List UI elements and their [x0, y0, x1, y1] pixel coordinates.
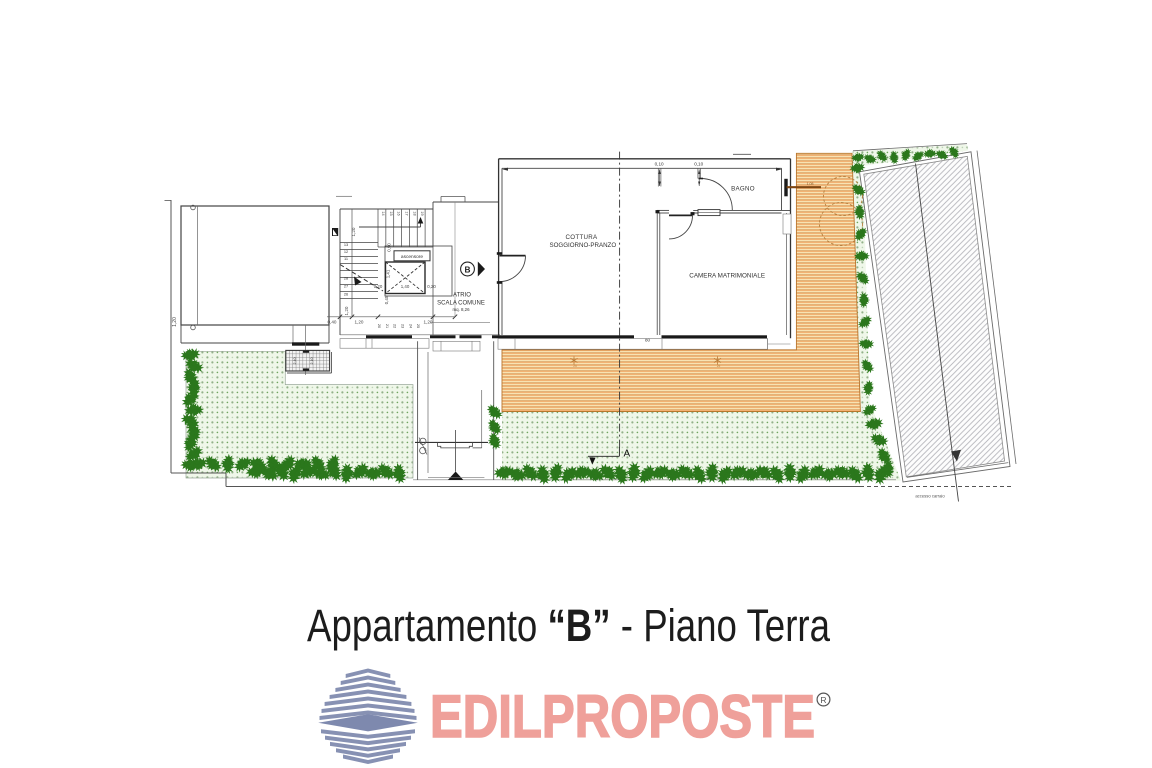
- svg-text:23: 23: [400, 324, 404, 328]
- svg-text:Appartamento “B” - Piano Terra: Appartamento “B” - Piano Terra: [307, 600, 831, 651]
- svg-text:28: 28: [344, 276, 348, 281]
- svg-text:1,20: 1,20: [172, 317, 178, 327]
- svg-text:16: 16: [397, 211, 401, 215]
- svg-text:27: 27: [344, 284, 348, 289]
- svg-text:R: R: [820, 695, 826, 705]
- svg-text:1,20: 1,20: [424, 320, 433, 325]
- svg-text:COTTURA: COTTURA: [565, 234, 598, 241]
- svg-text:A: A: [623, 448, 630, 459]
- svg-text:1,40: 1,40: [401, 284, 410, 289]
- svg-text:1,20: 1,20: [351, 227, 356, 236]
- svg-text:24: 24: [408, 324, 412, 328]
- svg-text:BAGNO: BAGNO: [731, 185, 755, 192]
- svg-text:ascensore: ascensore: [401, 254, 423, 260]
- svg-text:80: 80: [645, 338, 651, 343]
- svg-text:15: 15: [389, 211, 393, 215]
- svg-text:13: 13: [344, 242, 348, 247]
- svg-text:0,40: 0,40: [328, 320, 337, 325]
- svg-text:25: 25: [573, 364, 577, 368]
- svg-text:0,10: 0,10: [655, 162, 664, 167]
- svg-text:1,20: 1,20: [355, 320, 364, 325]
- svg-text:accesso carraio: accesso carraio: [915, 494, 945, 499]
- svg-text:17: 17: [404, 211, 408, 215]
- svg-text:SCALA COMUNE: SCALA COMUNE: [437, 301, 485, 307]
- svg-text:11: 11: [344, 256, 348, 261]
- svg-text:14: 14: [381, 211, 385, 215]
- svg-text:22: 22: [393, 324, 397, 328]
- svg-text:18: 18: [412, 211, 416, 215]
- svg-text:2,40: 2,40: [293, 358, 297, 365]
- svg-text:0,10: 0,10: [694, 162, 703, 167]
- svg-text:mq. 8,26: mq. 8,26: [452, 307, 470, 312]
- svg-text:1,05: 1,05: [807, 182, 814, 186]
- svg-text:1,41: 1,41: [386, 269, 391, 278]
- svg-text:0,45: 0,45: [384, 295, 389, 304]
- svg-text:2,10: 2,10: [310, 358, 314, 365]
- svg-text:25: 25: [416, 324, 420, 328]
- svg-text:12: 12: [344, 249, 348, 254]
- svg-text:26: 26: [344, 292, 348, 297]
- svg-text:25: 25: [717, 364, 721, 368]
- svg-text:EDILPROPOSTE: EDILPROPOSTE: [430, 683, 815, 750]
- svg-text:19: 19: [420, 211, 424, 215]
- svg-text:CAMERA MATRIMONIALE: CAMERA MATRIMONIALE: [689, 273, 765, 280]
- svg-text:20: 20: [377, 324, 381, 328]
- svg-text:B: B: [465, 264, 471, 274]
- svg-text:21: 21: [385, 324, 389, 328]
- svg-text:1,20: 1,20: [344, 306, 349, 315]
- svg-text:0,90: 0,90: [387, 243, 392, 252]
- svg-text:ATRIO: ATRIO: [453, 293, 471, 299]
- svg-text:0,20: 0,20: [427, 284, 436, 289]
- svg-text:SOGGIORNO-PRANZO: SOGGIORNO-PRANZO: [549, 242, 616, 249]
